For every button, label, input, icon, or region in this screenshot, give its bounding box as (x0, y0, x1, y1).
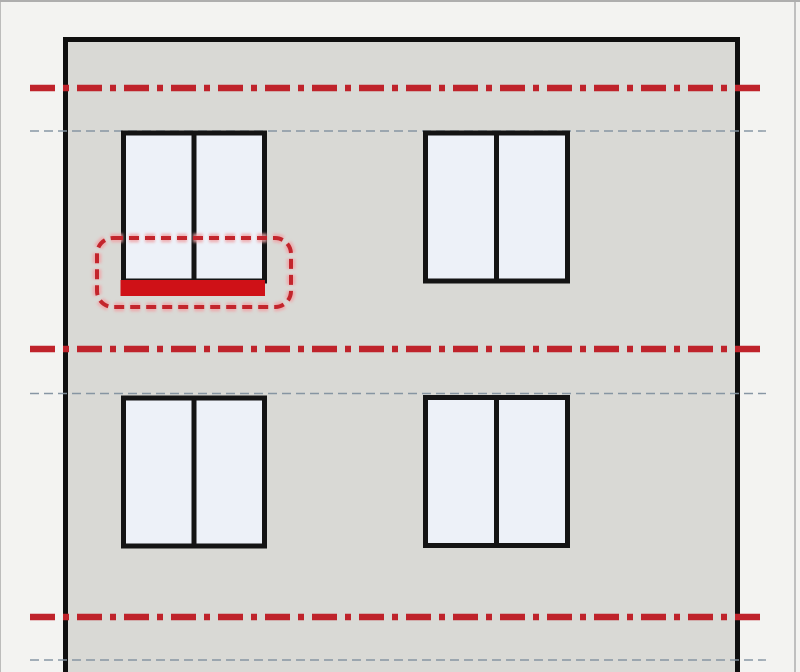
screenshot-top-edge (0, 0, 800, 2)
screenshot-right-edge (794, 0, 796, 672)
window-bottom-left (124, 398, 265, 546)
screenshot-left-edge (0, 0, 1, 672)
elevation-diagram (0, 0, 800, 672)
window-top-right (426, 133, 568, 281)
window-top-left (124, 133, 265, 281)
window-top-left-sill-highlight (121, 280, 266, 296)
building-elevation-svg (0, 0, 800, 672)
window-bottom-right (426, 398, 568, 546)
